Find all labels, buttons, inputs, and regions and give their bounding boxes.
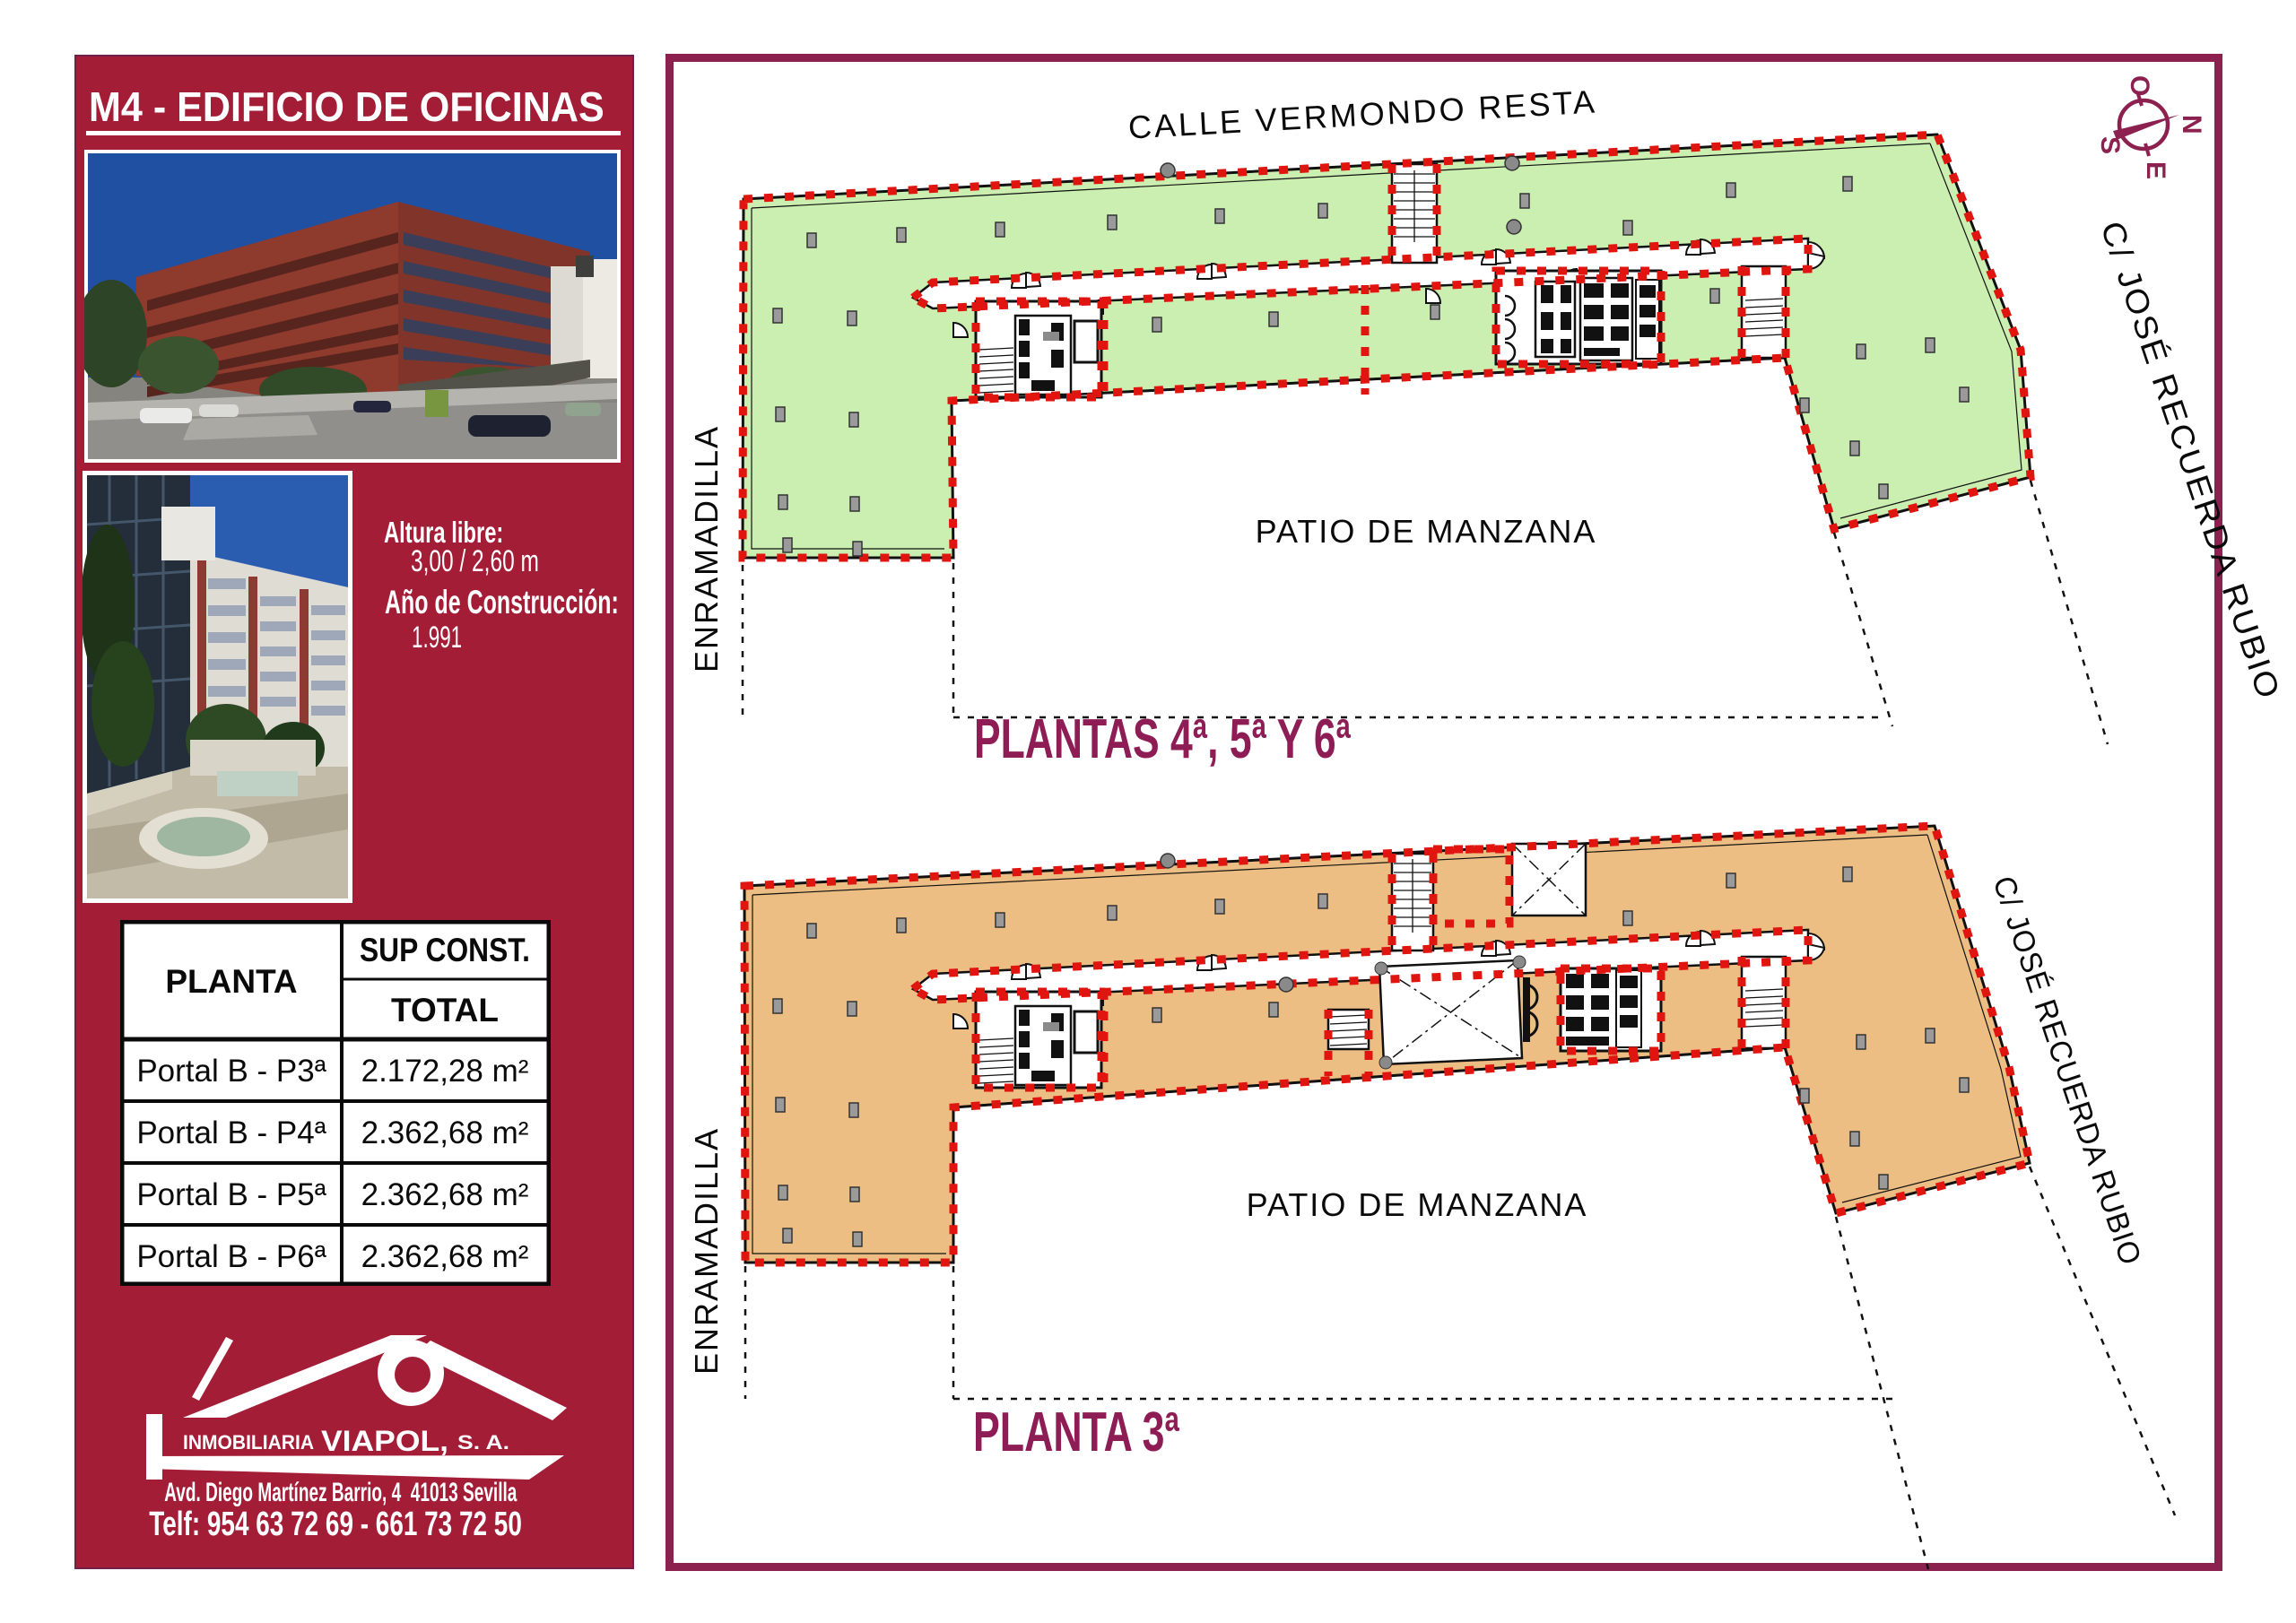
svg-text:PATIO DE MANZANA: PATIO DE MANZANA (1247, 1186, 1588, 1223)
svg-text:E: E (2141, 161, 2170, 179)
svg-text:PLANTA 3ª: PLANTA 3ª (973, 1402, 1179, 1463)
svg-text:CALLE VERMONDO RESTA: CALLE VERMONDO RESTA (1127, 82, 1598, 145)
svg-text:PATIO DE MANZANA: PATIO DE MANZANA (1256, 513, 1597, 550)
svg-text:ENRAMADILLA: ENRAMADILLA (688, 425, 725, 673)
svg-text:N: N (2177, 115, 2206, 135)
svg-text:PLANTAS 4ª, 5ª Y 6ª: PLANTAS 4ª, 5ª Y 6ª (974, 708, 1351, 770)
svg-text:O: O (2125, 75, 2154, 96)
svg-text:ENRAMADILLA: ENRAMADILLA (688, 1127, 725, 1375)
svg-text:S: S (2095, 136, 2125, 154)
svg-text:C/ JOSÉ RECUERDA RUBIO: C/ JOSÉ RECUERDA RUBIO (2093, 217, 2288, 705)
